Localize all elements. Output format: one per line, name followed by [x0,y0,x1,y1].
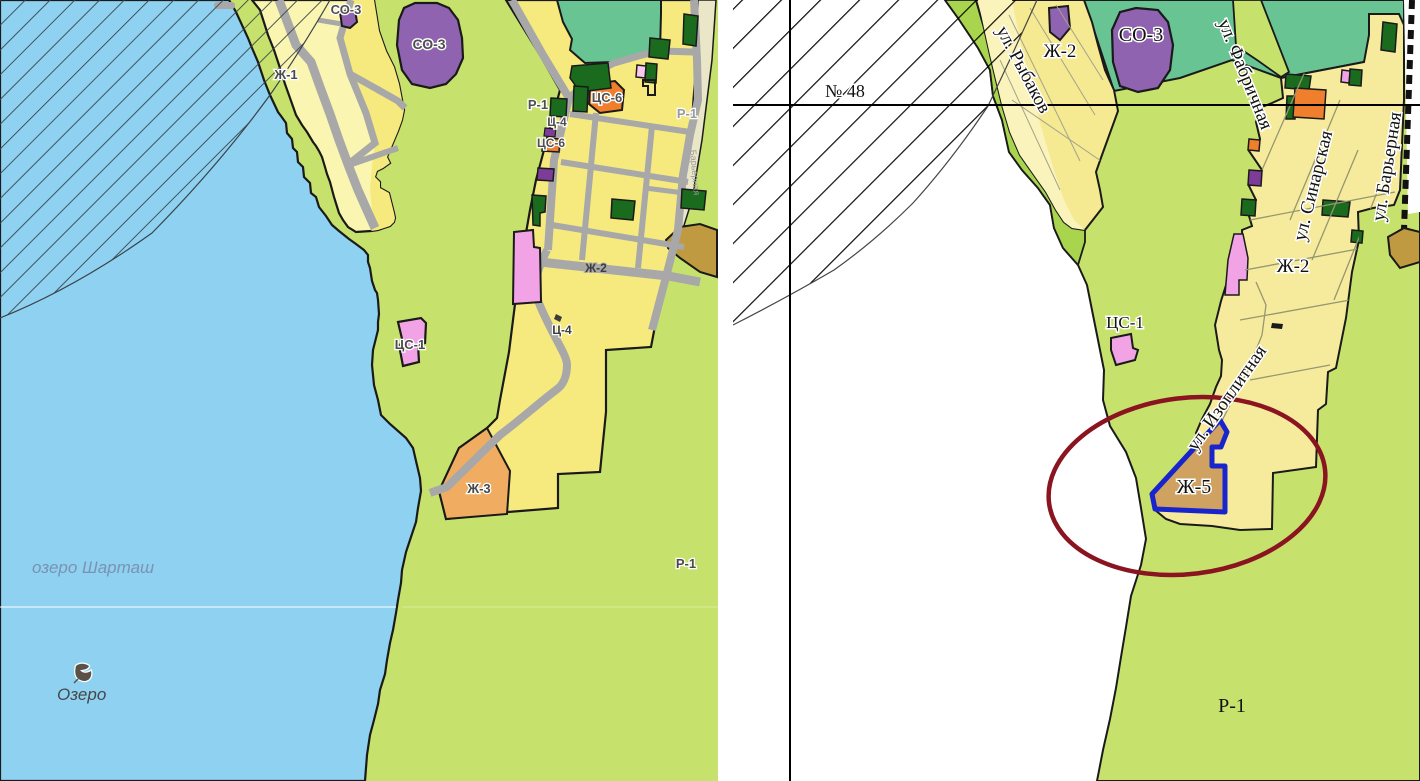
svg-text:Озеро: Озеро [57,685,106,704]
svg-text:СО-3: СО-3 [412,36,445,52]
svg-text:Ж-2: Ж-2 [584,261,607,275]
svg-text:ЦС-6: ЦС-6 [537,136,565,150]
svg-text:Ж-2: Ж-2 [1044,41,1077,62]
svg-text:ЦС-1: ЦС-1 [1106,313,1144,332]
svg-text:СО-3: СО-3 [331,2,362,17]
svg-text:Р-1: Р-1 [676,556,696,571]
svg-text:СО-3: СО-3 [1119,24,1163,46]
svg-text:ЦС-6: ЦС-6 [592,90,622,105]
svg-text:Ц-4: Ц-4 [547,115,567,129]
svg-text:Ж-1: Ж-1 [273,67,297,82]
svg-text:Р-1: Р-1 [677,106,697,121]
svg-text:№ 48: № 48 [825,81,865,101]
svg-text:Р-1: Р-1 [528,97,548,112]
svg-text:озеро Шарташ: озеро Шарташ [32,558,154,577]
svg-text:Р-1: Р-1 [1218,695,1246,717]
svg-text:Ж-3: Ж-3 [466,481,490,496]
svg-text:Ж-2: Ж-2 [1277,256,1310,277]
svg-text:Ц-4: Ц-4 [552,323,572,337]
svg-text:ЦС-1: ЦС-1 [395,337,425,352]
svg-text:Ж-5: Ж-5 [1177,476,1212,498]
